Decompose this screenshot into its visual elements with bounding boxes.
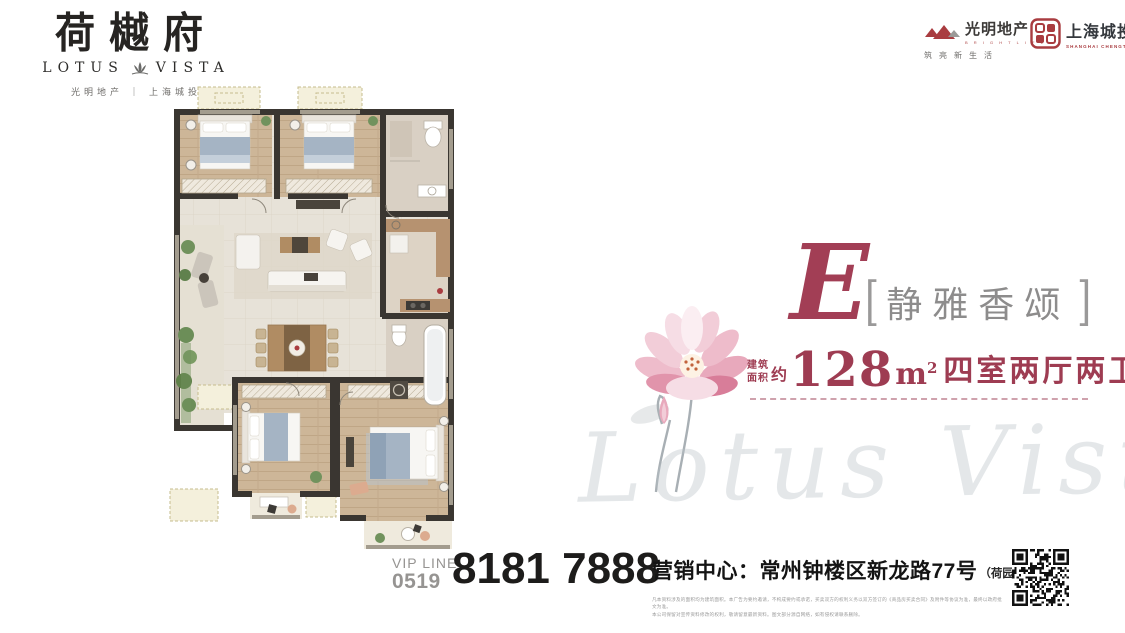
area-unit: m2	[895, 360, 937, 390]
unit-title: [ 静雅香颂 ]	[862, 276, 1095, 328]
phone-number: 8181 7888	[452, 544, 660, 594]
chengtou-name-en: SHANGHAI CHENGTOU	[1066, 44, 1125, 49]
sales-center-address: 营销中心：常州钟楼区新龙路77号	[652, 555, 977, 585]
floor-plan	[168, 85, 460, 550]
qr-code	[1012, 549, 1069, 606]
bracket-left: [	[865, 276, 879, 328]
area-value: 128	[790, 349, 893, 392]
vip-line-block: VIP LINE 0519	[392, 556, 457, 593]
guangming-logo: 光明地产 B R I G H T L I F E 筑亮新生活	[924, 18, 1016, 61]
unit-layout: 四室两厅两卫	[943, 346, 1125, 390]
chengtou-squares-icon	[1030, 18, 1061, 49]
lotus-petals	[632, 306, 752, 400]
unit-title-text: 静雅香颂	[886, 276, 1070, 328]
brand-en-left: LOTUS	[42, 60, 124, 76]
area-line: 建筑 面积 约 128 m2 四室两厅两卫	[747, 346, 1125, 392]
vip-line-label: VIP LINE	[392, 556, 457, 571]
bracket-right: ]	[1077, 276, 1091, 328]
living-room	[234, 228, 373, 299]
area-approx: 约	[771, 361, 787, 385]
area-prefix: 建筑 面积	[747, 360, 769, 385]
chengtou-name: 上海城投	[1066, 18, 1125, 42]
brand-name-en: LOTUS VISTA	[36, 60, 236, 76]
developer-logos: 光明地产 B R I G H T L I F E 筑亮新生活 上海城投 SHAN…	[924, 18, 1116, 64]
sales-center: 营销中心：常州钟楼区新龙路77号 （荷园正南侧）	[652, 555, 1060, 585]
dining-room	[256, 325, 338, 371]
guangming-peaks-icon	[924, 22, 960, 42]
guangming-slogan: 筑亮新生活	[924, 50, 1016, 61]
lotus-glyph-icon	[130, 61, 150, 76]
dashed-divider	[750, 398, 1088, 400]
ac-platforms-top	[198, 87, 362, 109]
lotus-illustration-icon	[612, 292, 772, 497]
unit-letter: E	[790, 231, 869, 335]
disclaimer-text: 凡本资料涉及的面积均为建筑面积。本广告为要约邀请，不构成要约或承诺，买卖双方的权…	[652, 596, 1004, 618]
brand-en-right: VISTA	[156, 60, 230, 76]
hall-console	[296, 200, 340, 209]
brand-name-cn: 荷樾府	[36, 11, 236, 57]
vip-area-code: 0519	[392, 571, 457, 593]
chengtou-logo: 上海城投 SHANGHAI CHENGTOU	[1030, 18, 1125, 49]
